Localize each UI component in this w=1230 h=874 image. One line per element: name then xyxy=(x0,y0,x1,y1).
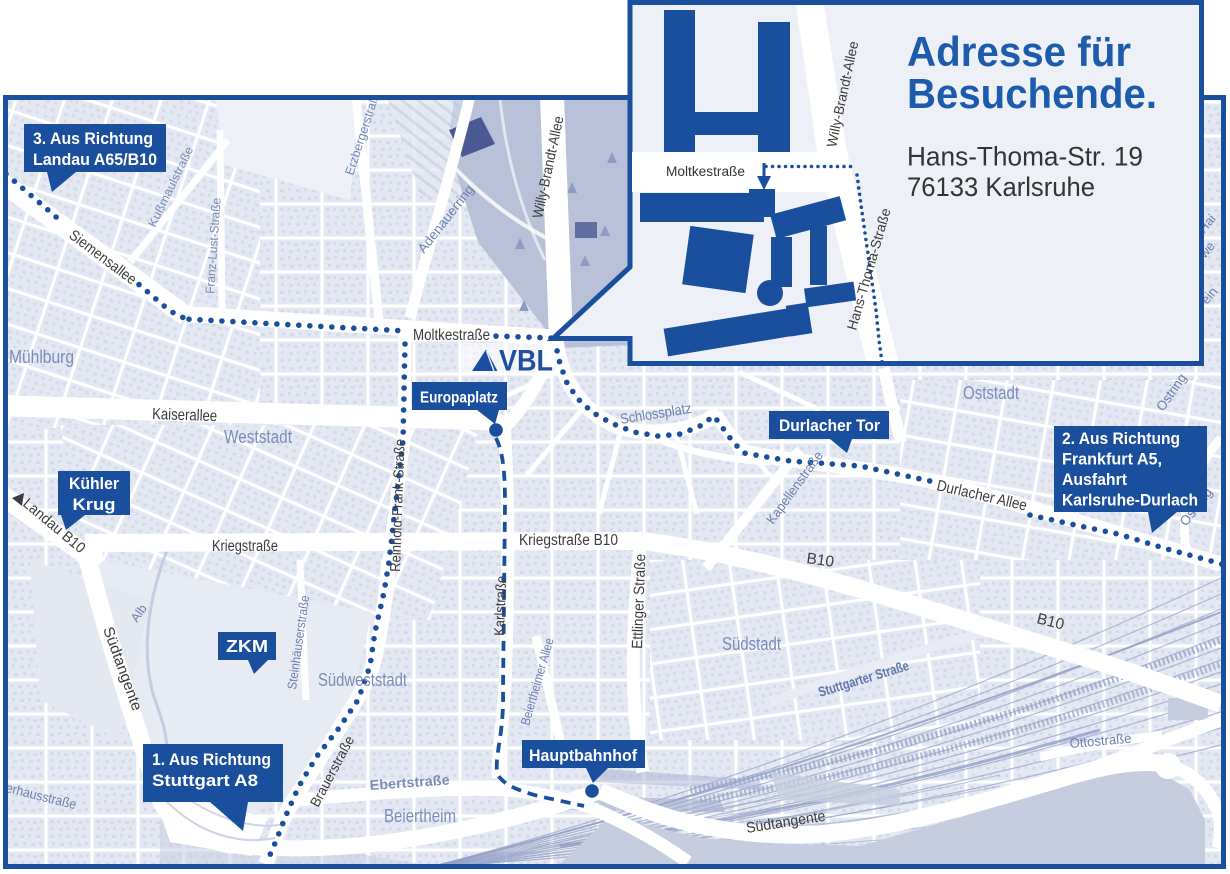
svg-text:Stuttgart A8: Stuttgart A8 xyxy=(152,771,258,790)
svg-text:3. Aus Richtung: 3. Aus Richtung xyxy=(33,129,153,148)
svg-text:Krug: Krug xyxy=(73,495,116,514)
svg-text:Kaiserallee: Kaiserallee xyxy=(152,406,218,425)
svg-text:2. Aus Richtung: 2. Aus Richtung xyxy=(1062,430,1180,448)
svg-text:Adresse für: Adresse für xyxy=(907,28,1131,75)
svg-text:Karlsruhe-Durlach: Karlsruhe-Durlach xyxy=(1062,492,1198,510)
svg-text:Landau A65/B10: Landau A65/B10 xyxy=(33,150,157,169)
svg-text:76133 Karlsruhe: 76133 Karlsruhe xyxy=(907,172,1095,202)
svg-text:VBL: VBL xyxy=(499,345,553,378)
svg-text:Durlacher Tor: Durlacher Tor xyxy=(779,417,881,435)
svg-text:Mühlburg: Mühlburg xyxy=(9,346,74,367)
svg-text:Moltkestraße: Moltkestraße xyxy=(413,327,490,344)
svg-text:Frankfurt A5,: Frankfurt A5, xyxy=(1062,451,1162,469)
svg-text:Beiertheim: Beiertheim xyxy=(384,805,456,826)
svg-text:Kühler: Kühler xyxy=(69,474,119,493)
svg-text:1. Aus Richtung: 1. Aus Richtung xyxy=(152,750,271,769)
svg-text:Moltkestraße: Moltkestraße xyxy=(666,164,745,179)
svg-text:Kriegstraße: Kriegstraße xyxy=(212,538,278,555)
svg-text:Ettlinger Straße: Ettlinger Straße xyxy=(629,554,649,650)
svg-text:Hauptbahnhof: Hauptbahnhof xyxy=(529,747,637,765)
svg-text:Ausfahrt: Ausfahrt xyxy=(1062,471,1127,489)
svg-text:Karlstraße: Karlstraße xyxy=(492,576,510,637)
svg-text:Hans-Thoma-Str. 19: Hans-Thoma-Str. 19 xyxy=(907,142,1143,172)
svg-text:Europaplatz: Europaplatz xyxy=(420,390,498,407)
svg-text:Oststadt: Oststadt xyxy=(963,382,1019,403)
svg-text:ZKM: ZKM xyxy=(226,636,268,656)
svg-text:Besuchende.: Besuchende. xyxy=(907,70,1157,117)
svg-text:Kriegstraße B10: Kriegstraße B10 xyxy=(519,532,618,549)
svg-text:Südstadt: Südstadt xyxy=(722,633,781,654)
svg-text:Weststadt: Weststadt xyxy=(224,426,292,447)
svg-text:Südweststadt: Südweststadt xyxy=(318,669,407,690)
